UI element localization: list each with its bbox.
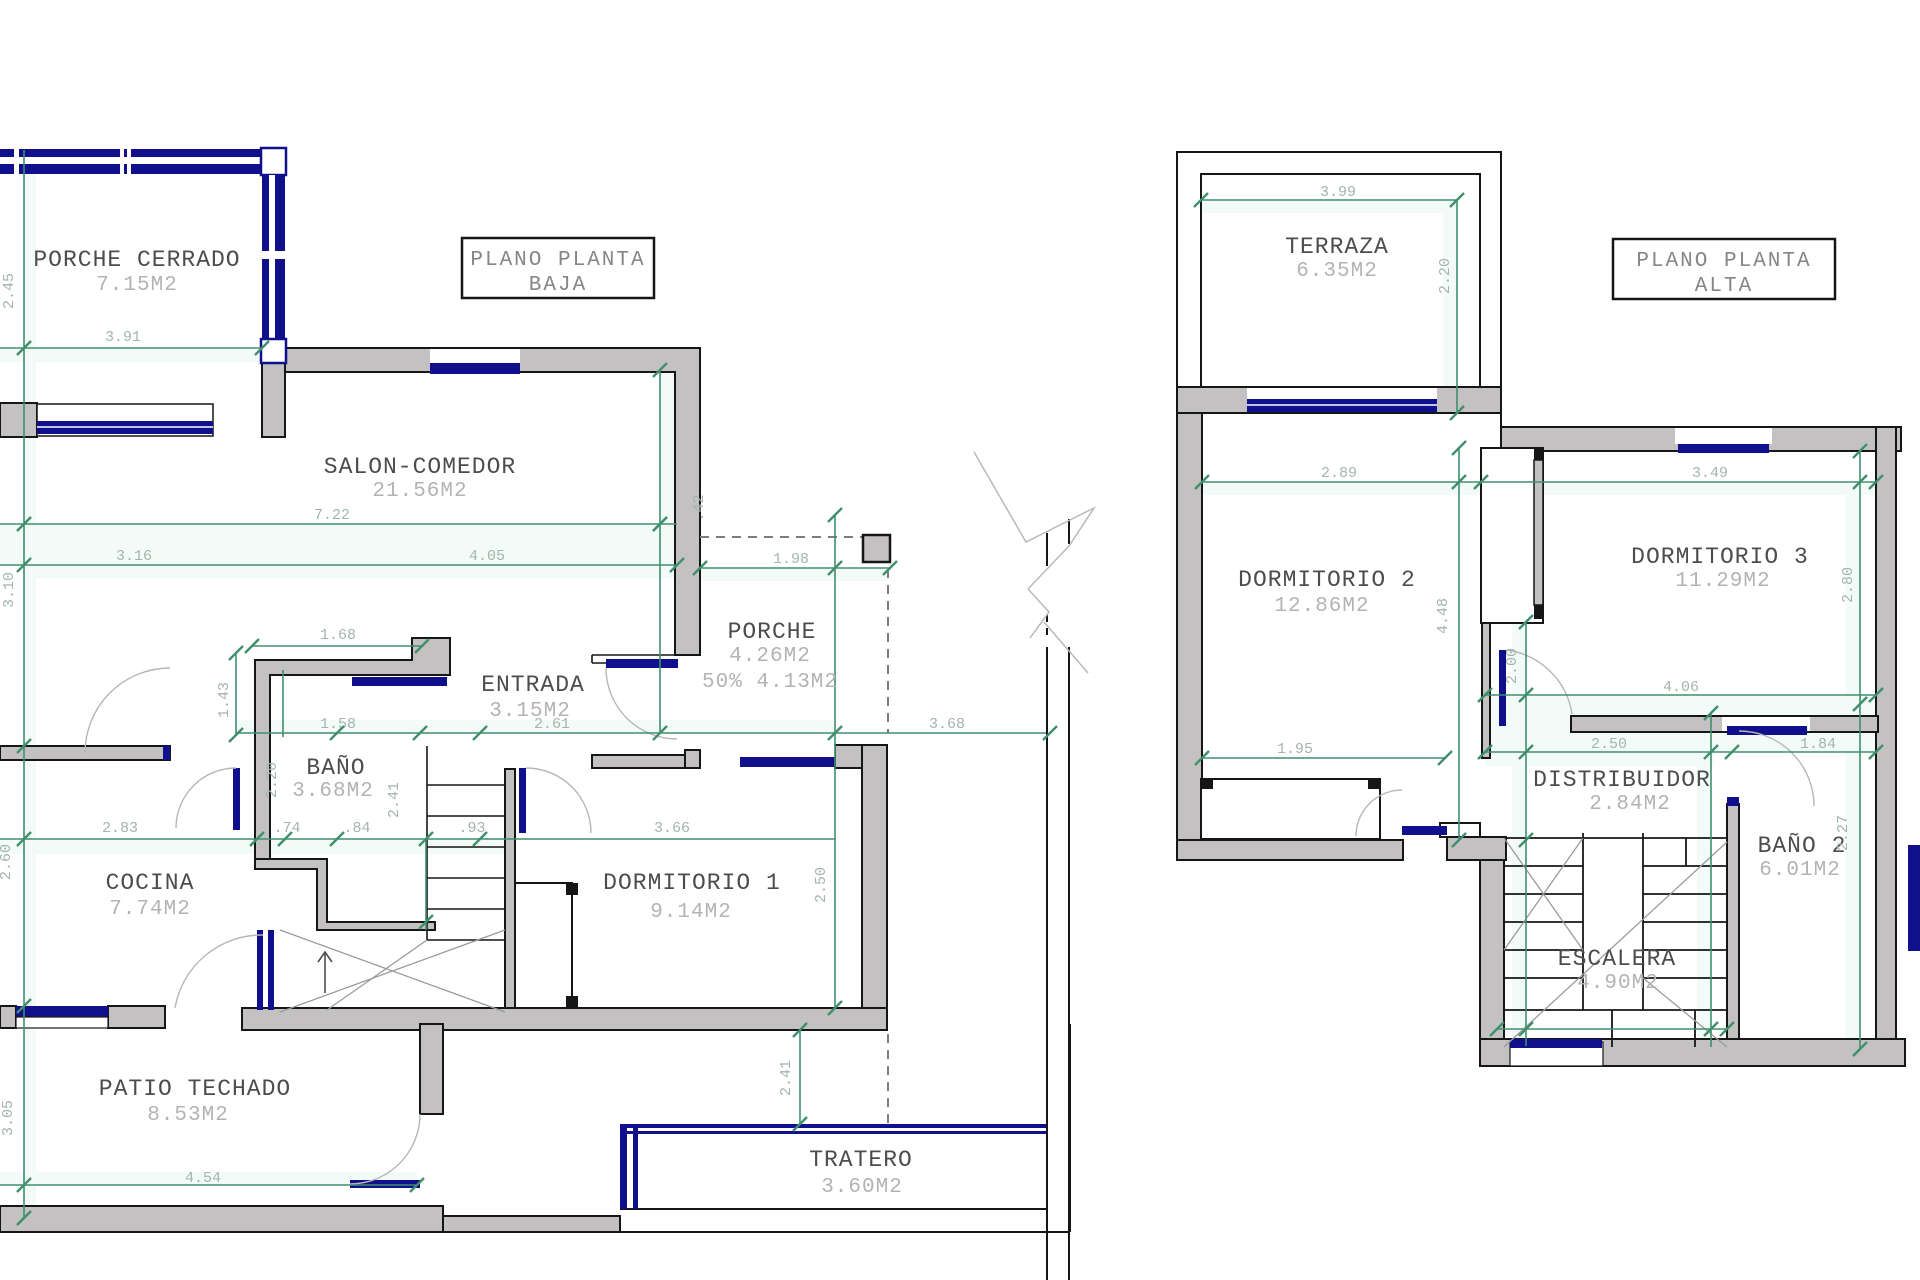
svg-text:2.20: 2.20	[1437, 258, 1454, 294]
svg-text:2.61: 2.61	[534, 716, 570, 733]
svg-text:.74: .74	[273, 820, 300, 837]
svg-text:7.74M2: 7.74M2	[109, 898, 191, 921]
svg-text:1.68: 1.68	[320, 627, 356, 644]
svg-text:8.53M2: 8.53M2	[147, 1104, 229, 1127]
svg-text:3.68M2: 3.68M2	[292, 780, 374, 803]
svg-text:SALON-COMEDOR: SALON-COMEDOR	[324, 454, 516, 480]
svg-text:2.45: 2.45	[1, 273, 18, 309]
svg-text:6.35M2: 6.35M2	[1296, 260, 1378, 283]
svg-text:4.54: 4.54	[185, 1170, 221, 1187]
svg-text:7.15M2: 7.15M2	[96, 274, 178, 297]
svg-text:PORCHE: PORCHE	[728, 619, 817, 645]
svg-text:TRATERO: TRATERO	[809, 1147, 913, 1173]
svg-text:3.68: 3.68	[929, 716, 965, 733]
svg-text:3.16: 3.16	[116, 548, 152, 565]
svg-text:2.89: 2.89	[1321, 465, 1357, 482]
svg-text:PATIO TECHADO: PATIO TECHADO	[99, 1076, 291, 1102]
svg-text:2.41: 2.41	[778, 1060, 795, 1096]
svg-text:PLANO PLANTA: PLANO PLANTA	[470, 249, 645, 272]
svg-text:1.84: 1.84	[1800, 736, 1836, 753]
svg-text:3.60M2: 3.60M2	[821, 1176, 903, 1199]
svg-text:2.60: 2.60	[0, 844, 15, 880]
svg-text:BAJA: BAJA	[529, 274, 587, 297]
svg-text:1.43: 1.43	[216, 682, 233, 718]
svg-text:2.41: 2.41	[386, 782, 403, 818]
svg-text:DISTRIBUIDOR: DISTRIBUIDOR	[1533, 767, 1711, 793]
svg-text:2.50: 2.50	[813, 867, 830, 903]
svg-text:ENTRADA: ENTRADA	[481, 672, 585, 698]
svg-text:DORMITORIO 3: DORMITORIO 3	[1631, 544, 1809, 570]
svg-text:3.66: 3.66	[654, 820, 690, 837]
svg-text:DORMITORIO 1: DORMITORIO 1	[603, 870, 781, 896]
svg-text:BAÑO: BAÑO	[306, 754, 365, 781]
svg-text:1.95: 1.95	[1277, 741, 1313, 758]
svg-text:11.29M2: 11.29M2	[1675, 570, 1770, 593]
svg-text:3.99: 3.99	[1320, 184, 1356, 201]
svg-text:.42: .42	[691, 494, 708, 521]
svg-text:2.83: 2.83	[102, 820, 138, 837]
svg-text:6.01M2: 6.01M2	[1759, 859, 1841, 882]
svg-text:9.14M2: 9.14M2	[650, 901, 732, 924]
svg-text:2.80: 2.80	[1840, 567, 1857, 603]
svg-text:COCINA: COCINA	[106, 870, 195, 896]
svg-text:21.56M2: 21.56M2	[372, 480, 467, 503]
svg-text:BAÑO 2: BAÑO 2	[1758, 832, 1847, 859]
svg-text:3.05: 3.05	[0, 1100, 17, 1136]
svg-text:2.84M2: 2.84M2	[1589, 793, 1671, 816]
svg-text:4.05: 4.05	[469, 548, 505, 565]
svg-text:DORMITORIO 2: DORMITORIO 2	[1238, 567, 1416, 593]
svg-text:PORCHE CERRADO: PORCHE CERRADO	[33, 247, 240, 273]
svg-text:3.91: 3.91	[105, 329, 141, 346]
svg-text:4.48: 4.48	[1435, 598, 1452, 634]
svg-text:ESCALERA: ESCALERA	[1558, 946, 1676, 972]
svg-text:2.00: 2.00	[1504, 648, 1521, 684]
svg-text:4.26M2: 4.26M2	[729, 645, 811, 668]
svg-text:50% 4.13M2: 50% 4.13M2	[702, 671, 838, 694]
svg-text:TERRAZA: TERRAZA	[1285, 234, 1389, 260]
svg-text:2.20: 2.20	[264, 762, 281, 798]
svg-text:3.49: 3.49	[1692, 465, 1728, 482]
svg-text:ALTA: ALTA	[1695, 275, 1753, 298]
svg-text:.84: .84	[343, 820, 370, 837]
svg-text:12.86M2: 12.86M2	[1274, 595, 1369, 618]
svg-text:3.10: 3.10	[1, 572, 18, 608]
svg-text:7.22: 7.22	[314, 507, 350, 524]
svg-text:4.90M2: 4.90M2	[1577, 972, 1659, 995]
svg-text:2.27: 2.27	[1835, 815, 1852, 851]
svg-text:2.50: 2.50	[1591, 736, 1627, 753]
svg-text:1.98: 1.98	[773, 551, 809, 568]
svg-text:PLANO PLANTA: PLANO PLANTA	[1636, 250, 1811, 273]
svg-text:.93: .93	[458, 820, 485, 837]
svg-text:4.06: 4.06	[1663, 679, 1699, 696]
